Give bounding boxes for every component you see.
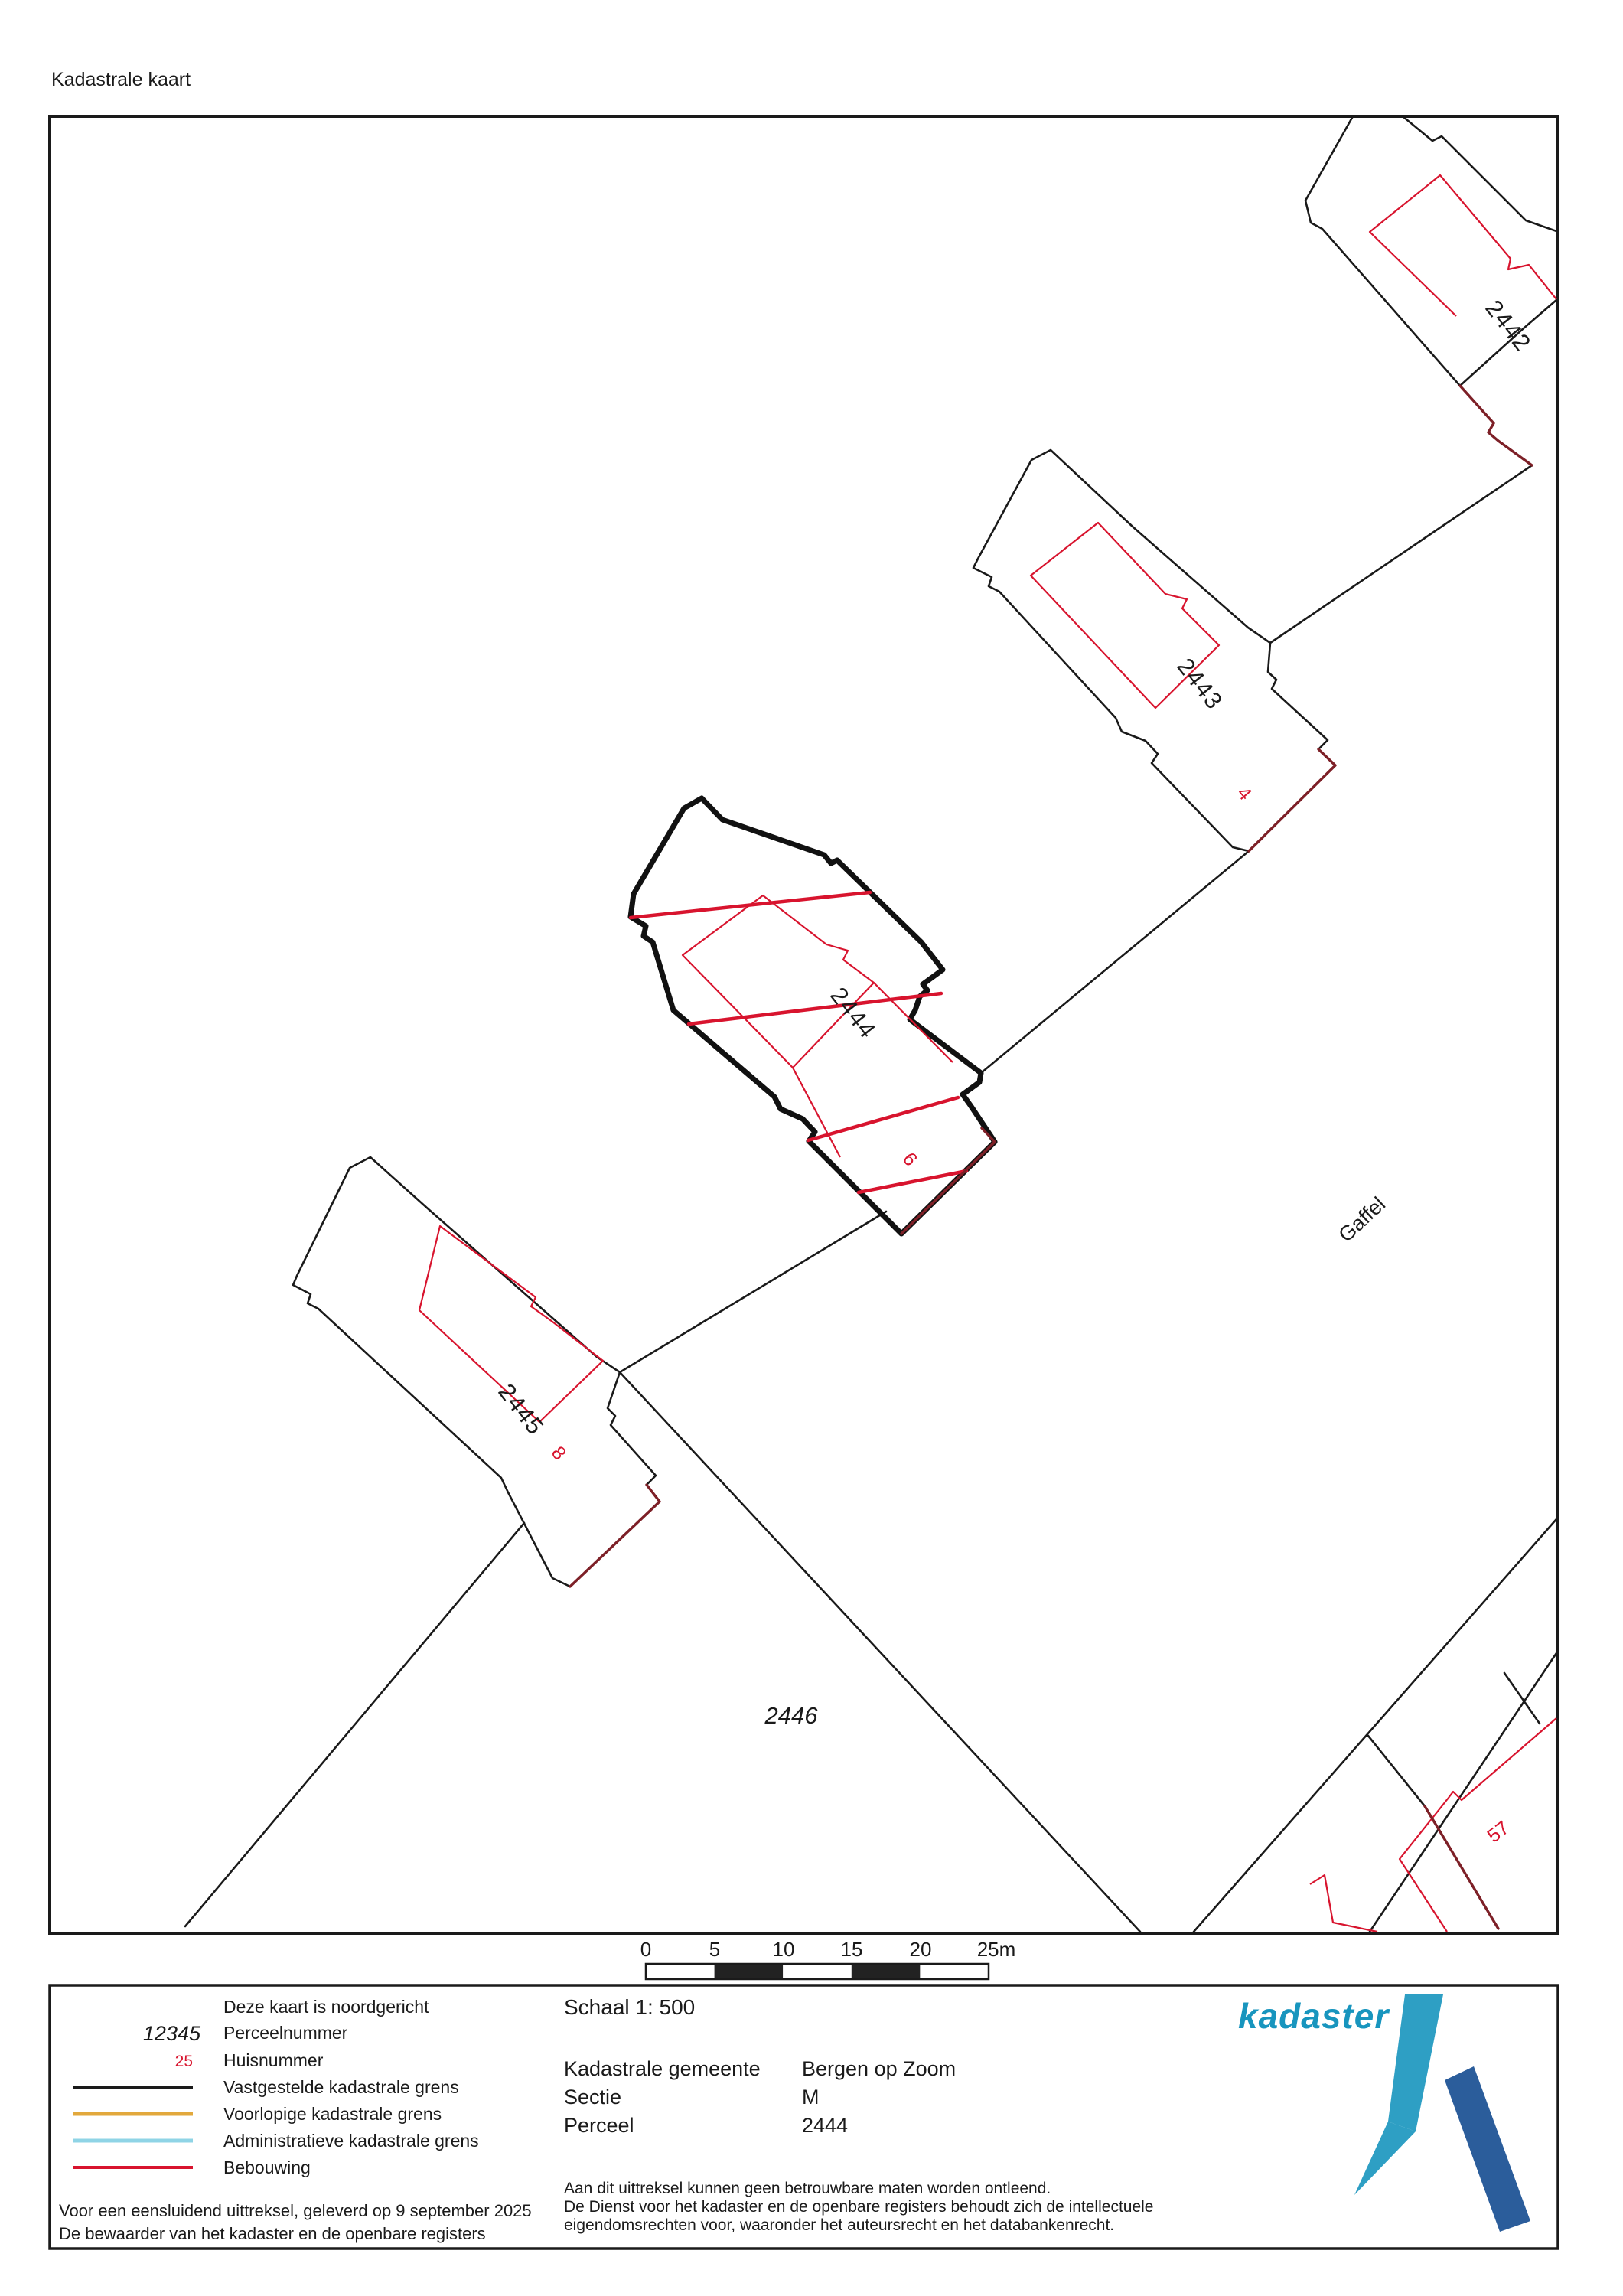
scale-seg-5: [920, 1964, 989, 1979]
parcel-2443-boundary: [973, 450, 1335, 851]
scale-seg-4: [852, 1964, 921, 1979]
scale-seg-3: [783, 1964, 852, 1979]
boundary-line-2444-2445: [620, 1212, 886, 1372]
parcel-2444-boundary-selected: [631, 798, 995, 1234]
boundary-line-2442-2443: [1270, 465, 1532, 643]
legend-label-voorlopig: Voorlopige kadastrale grens: [223, 2104, 442, 2124]
parcel-label-2442: 2442: [1480, 295, 1537, 357]
building-57: [1400, 1718, 1556, 1932]
field-value-perceel: 2444: [802, 2114, 848, 2137]
delivery-line-2: De bewaarder van het kadaster en de open…: [59, 2224, 486, 2243]
house-number-8: 8: [547, 1443, 570, 1465]
cadastral-extract-page: Kadastrale kaart: [0, 0, 1623, 2296]
hatch-stroke-1: [631, 892, 870, 918]
parcel-label-2445: 2445: [493, 1378, 549, 1440]
boundary-stub-2: [1368, 1736, 1425, 1806]
parcel-2442-boundary-ne: [1403, 116, 1556, 231]
legend: Deze kaart is noordgericht 12345 Perceel…: [59, 1997, 532, 2243]
kadaster-logo-mark-light-point: [1354, 2122, 1416, 2195]
building-57-annex: [1310, 1875, 1377, 1932]
scale-tick-0: 0: [640, 1938, 651, 1961]
delivery-line-1: Voor een eensluidend uittreksel, gelever…: [59, 2201, 532, 2220]
kadaster-logo: kadaster: [1238, 1994, 1530, 2232]
parcel-2445-boundary: [293, 1157, 660, 1587]
huisnummer-symbol: 25: [175, 2053, 193, 2070]
street-label-gaffel: Gaffel: [1334, 1192, 1390, 1247]
huisnummer-label: Huisnummer: [223, 2050, 324, 2070]
legend-label-bebouwing: Bebouwing: [223, 2157, 311, 2177]
disclaimer-line-3: eigendomsrechten voor, waaronder het aut…: [564, 2216, 1114, 2234]
boundary-stub-1: [1504, 1673, 1540, 1724]
hatch-stroke-3: [808, 1097, 958, 1140]
map-details: Schaal 1: 500 Kadastrale gemeente Bergen…: [564, 1995, 1153, 2234]
street-line-southeast-1: [1194, 1519, 1556, 1932]
parcel-label-2446: 2446: [764, 1702, 819, 1729]
street-line-southeast-2: [1370, 1653, 1556, 1932]
scale-tick-15: 15: [841, 1938, 863, 1961]
boundary-line-2443-2444: [981, 851, 1249, 1073]
kadaster-logo-mark-light-shaft: [1388, 1994, 1443, 2131]
overlap-2445: [570, 1485, 660, 1587]
house-number-4: 4: [1233, 783, 1256, 805]
scale-tick-25m: 25m: [977, 1938, 1016, 1961]
building-2444-wall-sw: [793, 1068, 840, 1157]
scale-tick-10: 10: [773, 1938, 795, 1961]
scale-seg-2: [715, 1964, 784, 1979]
buildings: [419, 175, 1556, 1932]
map-border: [50, 116, 1558, 1933]
house-number-57: 57: [1483, 1817, 1513, 1847]
scale-seg-1: [646, 1964, 715, 1979]
scale-tick-5: 5: [709, 1938, 720, 1961]
overlap-2443: [1249, 749, 1335, 851]
overlap-57: [1425, 1806, 1498, 1929]
scale-tick-20: 20: [910, 1938, 932, 1961]
perceelnummer-symbol: 12345: [143, 2022, 201, 2045]
perceelnummer-label: Perceelnummer: [223, 2023, 348, 2043]
scale-bar: 0 5 10 15 20 25m: [640, 1938, 1016, 1979]
scale-text: Schaal 1: 500: [564, 1995, 695, 2019]
building-boundary-overlaps: [570, 386, 1532, 1929]
kadaster-logo-text: kadaster: [1238, 1996, 1390, 2036]
disclaimer-line-2: De Dienst voor het kadaster en de openba…: [564, 2198, 1153, 2216]
north-note: Deze kaart is noordgericht: [223, 1997, 429, 2017]
hatch-stroke-2: [689, 993, 941, 1024]
field-value-gemeente: Bergen op Zoom: [802, 2057, 956, 2080]
legend-label-vastgesteld: Vastgestelde kadastrale grens: [223, 2077, 459, 2097]
kadaster-logo-mark-dark-leg: [1445, 2066, 1530, 2232]
field-value-sectie: M: [802, 2086, 820, 2108]
legend-label-administratief: Administratieve kadastrale grens: [223, 2131, 479, 2151]
overlap-2442: [1460, 386, 1532, 465]
boundary-line-southwest: [185, 1523, 524, 1926]
house-number-6: 6: [898, 1149, 921, 1171]
field-label-gemeente: Kadastrale gemeente: [564, 2057, 761, 2080]
building-2442: [1370, 175, 1556, 316]
field-label-perceel: Perceel: [564, 2114, 634, 2137]
field-label-sectie: Sectie: [564, 2086, 621, 2108]
parcel-label-2444: 2444: [825, 982, 882, 1044]
page-title: Kadastrale kaart: [51, 69, 191, 90]
map-canvas: Kadastrale kaart: [0, 0, 1623, 2296]
boundary-line-2445-front: [620, 1372, 1140, 1932]
disclaimer-line-1: Aan dit uittreksel kunnen geen betrouwba…: [564, 2180, 1051, 2197]
